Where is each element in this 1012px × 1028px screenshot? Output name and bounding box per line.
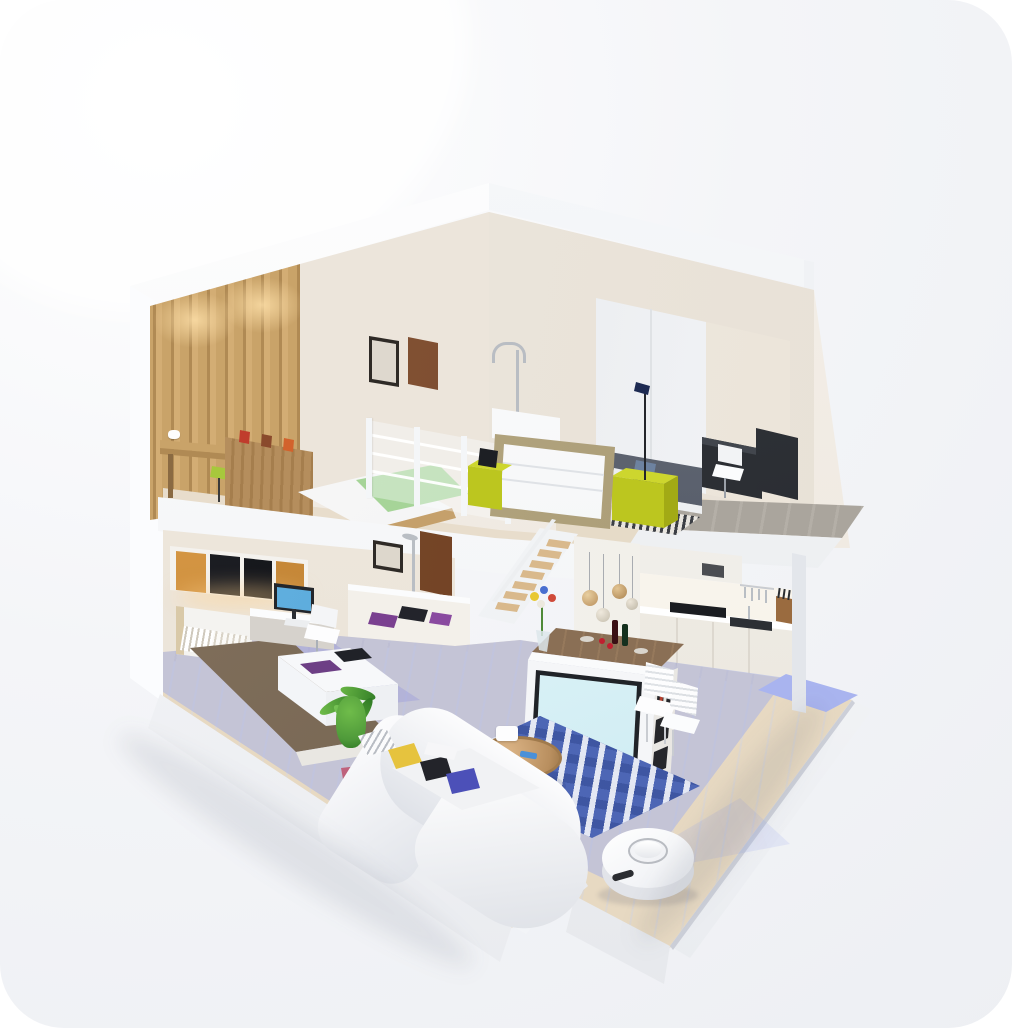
hanging-utensil-2 [751,588,753,601]
railing-post-3 [461,436,467,516]
arc-lamp-arc [492,342,526,363]
master-chair-leg [724,478,726,498]
flower-red [548,594,556,602]
apartment-render [0,0,1012,1028]
kitchen-faucet [748,606,750,619]
dish [580,636,594,642]
hanging-utensil-4 [765,590,767,603]
wine-bottle [612,620,618,644]
railing-post-2 [414,427,420,507]
railing-post [366,418,372,498]
wine-glass-red-2 [607,643,613,649]
loft-desk-cup [168,430,180,439]
dining-chair-2-leg [672,730,674,756]
flower-yellow [530,592,539,601]
pendant-cord-4 [632,556,633,600]
dish-2 [634,648,648,654]
flower-blue [540,586,548,594]
wine-glass-red [599,638,605,644]
pendant-cord-3 [619,554,620,586]
dining-chair-leg [646,714,648,742]
wine-bottle-2 [622,624,628,646]
pendant-globe-clear-2 [626,598,638,610]
robot-lidar-top [634,841,662,858]
flower-white [537,600,545,608]
pendant-globe-clear [596,608,610,622]
pendant-globe-amber-2 [612,584,627,599]
pendant-globe-amber [582,590,598,606]
pendant-cord-2 [603,554,604,610]
pendant-cord [589,552,590,592]
monitor-stand [292,609,296,619]
floor-lamp-pole [644,388,646,480]
hanging-utensil-3 [758,589,760,600]
hanging-utensil [744,587,746,598]
tissue-box [496,726,518,741]
